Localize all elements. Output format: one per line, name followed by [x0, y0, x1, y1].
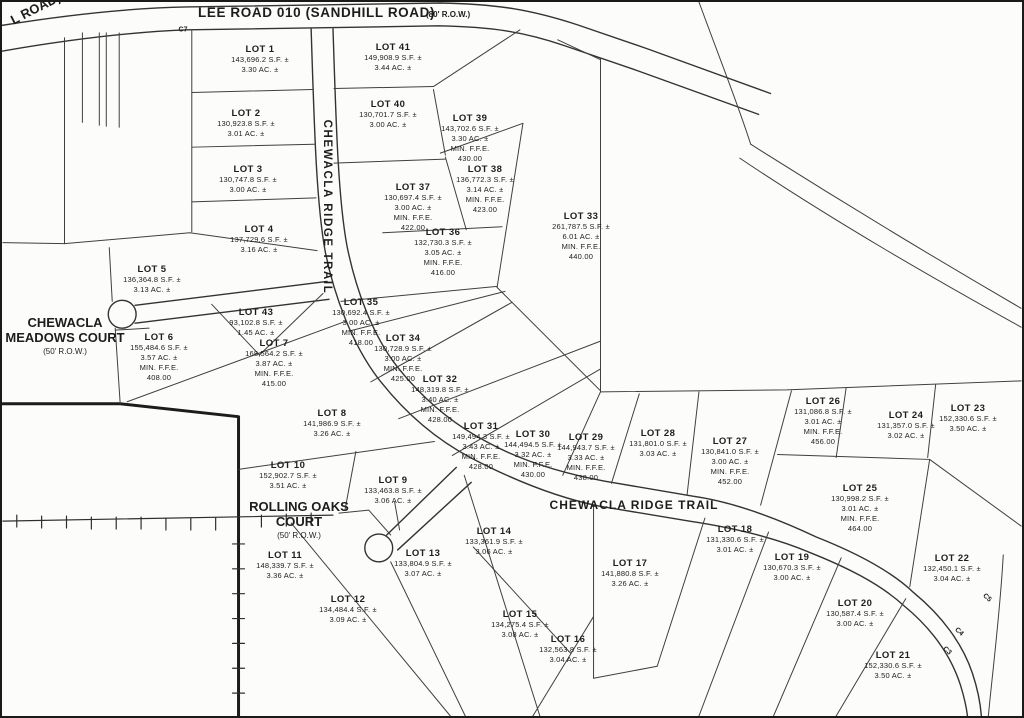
- lot-boundary-line: [3, 243, 65, 244]
- lot-number: LOT 25: [831, 483, 889, 494]
- lot-min-ffe-label: MIN. F.F.E.: [557, 463, 615, 473]
- lot-number: LOT 2: [217, 108, 275, 119]
- lot-area-sf: 133,463.8 S.F. ±: [364, 486, 422, 496]
- hatched-boundary: [3, 513, 333, 693]
- plat-map: LEE ROAD 010 (SANDHILL ROAD) (80' R.O.W.…: [0, 0, 1024, 718]
- lot-area-sf: 149,908.9 S.F. ±: [364, 53, 422, 63]
- lot-label: LOT 3 130,747.8 S.F. ± 3.00 AC. ±: [219, 164, 277, 195]
- lot-boundary-line: [433, 30, 520, 87]
- lot-label: LOT 23 152,330.6 S.F. ± 3.50 AC. ±: [939, 403, 997, 434]
- road-label-rolling-oaks-court: ROLLING OAKS COURT (50' R.O.W.): [249, 500, 349, 540]
- lot-label: LOT 43 93,102.8 S.F. ± 1.45 AC. ±: [229, 307, 282, 338]
- lot-boundary-line: [761, 391, 792, 505]
- lot-label: LOT 4 137,729.6 S.F. ± 3.16 AC. ±: [230, 224, 288, 255]
- lot-number: LOT 1: [231, 44, 289, 55]
- lot-area-ac: 3.00 AC. ±: [359, 120, 417, 130]
- lot-number: LOT 21: [864, 650, 922, 661]
- lot-min-ffe-label: MIN. F.F.E.: [411, 405, 469, 415]
- lot-label: LOT 17 141,880.8 S.F. ± 3.26 AC. ±: [601, 558, 659, 589]
- lot-area-sf: 130,670.3 S.F. ±: [763, 563, 821, 573]
- lot-area-ac: 1.45 AC. ±: [229, 328, 282, 338]
- lot-area-ac: 3.00 AC. ±: [384, 203, 442, 213]
- lot-area-ac: 3.00 AC. ±: [701, 457, 759, 467]
- lot-area-sf: 152,330.6 S.F. ±: [864, 661, 922, 671]
- court-name-line: CHEWACLA: [5, 316, 124, 331]
- lot-min-ffe-value: 456.00: [794, 437, 852, 447]
- lot-area-ac: 3.13 AC. ±: [123, 285, 181, 295]
- lot-label: LOT 37 130,697.4 S.F. ± 3.00 AC. ± MIN. …: [384, 182, 442, 233]
- lot-number: LOT 14: [465, 526, 523, 537]
- lot-area-sf: 155,484.6 S.F. ±: [130, 343, 188, 353]
- lot-min-ffe-label: MIN. F.F.E.: [441, 144, 499, 154]
- lot-area-ac: 3.07 AC. ±: [394, 569, 452, 579]
- court-name-line: ROLLING OAKS: [249, 500, 349, 515]
- lot-number: LOT 26: [794, 396, 852, 407]
- road-label-chewacla-meadows-court: CHEWACLA MEADOWS COURT (50' R.O.W.): [5, 316, 124, 356]
- lot-area-sf: 134,275.4 S.F. ±: [491, 620, 549, 630]
- lot-number: LOT 8: [303, 408, 361, 419]
- lot-boundary-line: [558, 40, 601, 60]
- lot-area-sf: 130,697.4 S.F. ±: [384, 193, 442, 203]
- lot-min-ffe-label: MIN. F.F.E.: [414, 258, 472, 268]
- lot-min-ffe-value: 440.00: [552, 252, 610, 262]
- lot-label: LOT 2 130,923.8 S.F. ± 3.01 AC. ±: [217, 108, 275, 139]
- lot-min-ffe-label: MIN. F.F.E.: [701, 467, 759, 477]
- lot-boundary-line: [109, 248, 112, 302]
- lot-min-ffe-value: 425.00: [374, 374, 432, 384]
- lot-min-ffe-value: 430.00: [441, 154, 499, 164]
- lot-min-ffe-value: 464.00: [831, 524, 889, 534]
- lot-boundary-line: [657, 518, 705, 666]
- court-name-line: COURT: [249, 515, 349, 530]
- lot-number: LOT 6: [130, 332, 188, 343]
- lot-number: LOT 3: [219, 164, 277, 175]
- lot-boundary-line: [601, 381, 1022, 392]
- lot-area-ac: 3.26 AC. ±: [303, 429, 361, 439]
- lot-min-ffe-value: 423.00: [456, 205, 514, 215]
- boundary-ticks: [17, 513, 311, 693]
- lot-number: LOT 30: [504, 429, 562, 440]
- lot-area-ac: 3.14 AC. ±: [456, 185, 514, 195]
- lot-label: LOT 40 130,701.7 S.F. ± 3.00 AC. ±: [359, 99, 417, 130]
- lot-number: LOT 20: [826, 598, 884, 609]
- lot-boundary-line: [391, 562, 466, 716]
- lot-min-ffe-label: MIN. F.F.E.: [384, 213, 442, 223]
- lot-boundary-line: [988, 555, 1003, 716]
- lot-area-sf: 168,564.2 S.F. ±: [245, 349, 303, 359]
- lot-area-ac: 3.06 AC. ±: [364, 496, 422, 506]
- lot-min-ffe-label: MIN. F.F.E.: [374, 364, 432, 374]
- lot-area-sf: 130,692.4 S.F. ±: [332, 308, 390, 318]
- lot-area-sf: 152,902.7 S.F. ±: [259, 471, 317, 481]
- lot-number: LOT 13: [394, 548, 452, 559]
- lot-area-sf: 130,747.8 S.F. ±: [219, 175, 277, 185]
- lot-area-ac: 3.06 AC. ±: [465, 547, 523, 557]
- lot-area-ac: 3.50 AC. ±: [864, 671, 922, 681]
- lot-boundary-line: [334, 87, 433, 89]
- lot-min-ffe-value: 416.00: [414, 268, 472, 278]
- lot-number: LOT 33: [552, 211, 610, 222]
- road-row-label: (80' R.O.W.): [426, 10, 470, 19]
- lot-label: LOT 27 130,841.0 S.F. ± 3.00 AC. ± MIN. …: [701, 436, 759, 487]
- lot-boundary-line: [740, 158, 1021, 327]
- lot-area-ac: 3.33 AC. ±: [557, 453, 615, 463]
- lot-area-sf: 149,494.3 S.F. ±: [452, 432, 510, 442]
- lot-label: LOT 31 149,494.3 S.F. ± 3.43 AC. ± MIN. …: [452, 421, 510, 472]
- lot-label: LOT 38 136,772.3 S.F. ± 3.14 AC. ± MIN. …: [456, 164, 514, 215]
- lot-area-sf: 130,701.7 S.F. ±: [359, 110, 417, 120]
- lot-label: LOT 24 131,357.0 S.F. ± 3.02 AC. ±: [877, 410, 935, 441]
- lot-area-ac: 3.87 AC. ±: [245, 359, 303, 369]
- lot-label: LOT 33 261,787.5 S.F. ± 6.01 AC. ± MIN. …: [552, 211, 610, 262]
- lot-area-ac: 3.01 AC. ±: [217, 129, 275, 139]
- lot-area-sf: 93,102.8 S.F. ±: [229, 318, 282, 328]
- lot-min-ffe-value: 430.00: [504, 470, 562, 480]
- lot-number: LOT 37: [384, 182, 442, 193]
- lot-min-ffe-label: MIN. F.F.E.: [332, 328, 390, 338]
- lot-number: LOT 35: [332, 297, 390, 308]
- boundary-line: [3, 404, 239, 716]
- lot-area-ac: 3.40 AC. ±: [411, 395, 469, 405]
- lot-min-ffe-label: MIN. F.F.E.: [456, 195, 514, 205]
- lot-area-sf: 130,587.4 S.F. ±: [826, 609, 884, 619]
- road-label-chewacla-ridge-trail-vertical: CHEWACLA RIDGE TRAIL: [321, 120, 333, 295]
- lot-label: LOT 10 152,902.7 S.F. ± 3.51 AC. ±: [259, 460, 317, 491]
- lot-min-ffe-label: MIN. F.F.E.: [552, 242, 610, 252]
- lot-label: LOT 18 131,330.6 S.F. ± 3.01 AC. ±: [706, 524, 764, 555]
- lot-label: LOT 22 132,450.1 S.F. ± 3.04 AC. ±: [923, 553, 981, 584]
- lot-area-sf: 143,702.6 S.F. ±: [441, 124, 499, 134]
- court-row-label: (50' R.O.W.): [5, 347, 124, 356]
- lot-area-sf: 148,319.8 S.F. ±: [411, 385, 469, 395]
- lot-boundary-line: [594, 666, 658, 678]
- lot-area-ac: 3.30 AC. ±: [231, 65, 289, 75]
- lot-number: LOT 7: [245, 338, 303, 349]
- lot-label: LOT 29 144,943.7 S.F. ± 3.33 AC. ± MIN. …: [557, 432, 615, 483]
- lot-label: LOT 21 152,330.6 S.F. ± 3.50 AC. ±: [864, 650, 922, 681]
- lot-number: LOT 43: [229, 307, 282, 318]
- lot-area-sf: 130,841.0 S.F. ±: [701, 447, 759, 457]
- lot-area-sf: 131,330.6 S.F. ±: [706, 535, 764, 545]
- lot-area-ac: 3.04 AC. ±: [923, 574, 981, 584]
- lot-area-ac: 3.57 AC. ±: [130, 353, 188, 363]
- lot-area-ac: 3.43 AC. ±: [452, 442, 510, 452]
- lot-area-ac: 3.09 AC. ±: [319, 615, 377, 625]
- lot-label: LOT 11 148,339.7 S.F. ± 3.36 AC. ±: [256, 550, 314, 581]
- lot-label: LOT 36 132,730.3 S.F. ± 3.05 AC. ± MIN. …: [414, 227, 472, 278]
- lot-number: LOT 10: [259, 460, 317, 471]
- lot-area-ac: 3.50 AC. ±: [939, 424, 997, 434]
- lot-number: LOT 23: [939, 403, 997, 414]
- lot-min-ffe-label: MIN. F.F.E.: [130, 363, 188, 373]
- lot-label: LOT 1 143,696.2 S.F. ± 3.30 AC. ±: [231, 44, 289, 75]
- lot-label: LOT 25 130,998.2 S.F. ± 3.01 AC. ± MIN. …: [831, 483, 889, 534]
- lot-area-ac: 3.51 AC. ±: [259, 481, 317, 491]
- lot-area-sf: 261,787.5 S.F. ±: [552, 222, 610, 232]
- lot-area-ac: 3.00 AC. ±: [826, 619, 884, 629]
- lot-min-ffe-value: 422.00: [384, 223, 442, 233]
- lot-area-ac: 3.32 AC. ±: [504, 450, 562, 460]
- lot-area-ac: 3.01 AC. ±: [794, 417, 852, 427]
- lot-label: LOT 7 168,564.2 S.F. ± 3.87 AC. ± MIN. F…: [245, 338, 303, 389]
- lot-number: LOT 11: [256, 550, 314, 561]
- lot-area-sf: 152,330.6 S.F. ±: [939, 414, 997, 424]
- lot-area-ac: 3.01 AC. ±: [831, 504, 889, 514]
- lot-area-sf: 131,086.8 S.F. ±: [794, 407, 852, 417]
- lot-label: LOT 20 130,587.4 S.F. ± 3.00 AC. ±: [826, 598, 884, 629]
- curve-label: C7: [179, 27, 188, 34]
- lot-number: LOT 28: [629, 428, 687, 439]
- lot-area-sf: 137,729.6 S.F. ±: [230, 235, 288, 245]
- lot-area-sf: 148,339.7 S.F. ±: [256, 561, 314, 571]
- lot-boundary-line: [778, 454, 930, 459]
- lot-number: LOT 38: [456, 164, 514, 175]
- road-label-chewacla-ridge-trail-horizontal: CHEWACLA RIDGE TRAIL: [550, 498, 719, 512]
- lot-label: LOT 30 144,494.5 S.F. ± 3.32 AC. ± MIN. …: [504, 429, 562, 480]
- lot-area-ac: 3.00 AC. ±: [374, 354, 432, 364]
- lot-area-sf: 136,772.3 S.F. ±: [456, 175, 514, 185]
- court-row-label: (50' R.O.W.): [249, 531, 349, 540]
- lot-area-ac: 3.30 AC. ±: [441, 134, 499, 144]
- lot-min-ffe-value: 415.00: [245, 379, 303, 389]
- lot-label: LOT 6 155,484.6 S.F. ± 3.57 AC. ± MIN. F…: [130, 332, 188, 383]
- court-name-line: MEADOWS COURT: [5, 331, 124, 346]
- lot-boundary-line: [687, 392, 699, 495]
- lot-number: LOT 17: [601, 558, 659, 569]
- lot-min-ffe-value: 428.00: [411, 415, 469, 425]
- lot-number: LOT 24: [877, 410, 935, 421]
- lot-label: LOT 39 143,702.6 S.F. ± 3.30 AC. ± MIN. …: [441, 113, 499, 164]
- lot-label: LOT 35 130,692.4 S.F. ± 3.00 AC. ± MIN. …: [332, 297, 390, 348]
- lot-label: LOT 14 133,361.9 S.F. ± 3.06 AC. ±: [465, 526, 523, 557]
- lot-min-ffe-value: 452.00: [701, 477, 759, 487]
- lot-label: LOT 8 141,986.9 S.F. ± 3.26 AC. ±: [303, 408, 361, 439]
- lot-boundary-line: [464, 475, 540, 716]
- lot-area-ac: 3.26 AC. ±: [601, 579, 659, 589]
- lot-area-sf: 143,696.2 S.F. ±: [231, 55, 289, 65]
- lot-min-ffe-label: MIN. F.F.E.: [831, 514, 889, 524]
- lot-number: LOT 4: [230, 224, 288, 235]
- subdivision-boundary: [3, 404, 239, 716]
- road-label-lee-road: LEE ROAD 010 (SANDHILL ROAD): [198, 5, 435, 20]
- lot-area-ac: 3.01 AC. ±: [706, 545, 764, 555]
- lot-area-ac: 3.02 AC. ±: [877, 431, 935, 441]
- lot-boundary-line: [751, 144, 1021, 308]
- lot-label: LOT 12 134,484.4 S.F. ± 3.09 AC. ±: [319, 594, 377, 625]
- lot-number: LOT 18: [706, 524, 764, 535]
- lot-number: LOT 15: [491, 609, 549, 620]
- lot-min-ffe-value: 438.00: [557, 473, 615, 483]
- lot-boundary-line: [334, 159, 445, 163]
- lot-label: LOT 5 136,364.8 S.F. ± 3.13 AC. ±: [123, 264, 181, 295]
- lot-area-sf: 141,880.8 S.F. ±: [601, 569, 659, 579]
- lot-number: LOT 40: [359, 99, 417, 110]
- lot-min-ffe-label: MIN. F.F.E.: [245, 369, 303, 379]
- lot-area-ac: 3.04 AC. ±: [539, 655, 597, 665]
- lot-area-sf: 144,943.7 S.F. ±: [557, 443, 615, 453]
- lot-min-ffe-label: MIN. F.F.E.: [452, 452, 510, 462]
- lot-area-ac: 6.01 AC. ±: [552, 232, 610, 242]
- lot-number: LOT 5: [123, 264, 181, 275]
- lot-area-sf: 132,730.3 S.F. ±: [414, 238, 472, 248]
- cul-de-sac: [365, 534, 393, 562]
- lot-label: LOT 13 133,804.9 S.F. ± 3.07 AC. ±: [394, 548, 452, 579]
- lot-label: LOT 26 131,086.8 S.F. ± 3.01 AC. ± MIN. …: [794, 396, 852, 447]
- lot-area-ac: 3.00 AC. ±: [219, 185, 277, 195]
- lot-area-sf: 130,998.2 S.F. ±: [831, 494, 889, 504]
- lot-area-sf: 131,801.0 S.F. ±: [629, 439, 687, 449]
- lot-area-ac: 3.03 AC. ±: [629, 449, 687, 459]
- lot-area-sf: 132,450.1 S.F. ±: [923, 564, 981, 574]
- lot-boundary-line: [192, 90, 312, 93]
- lot-area-ac: 3.36 AC. ±: [256, 571, 314, 581]
- lot-boundary-line: [192, 144, 314, 147]
- lot-number: LOT 12: [319, 594, 377, 605]
- lot-area-sf: 133,804.9 S.F. ±: [394, 559, 452, 569]
- lot-area-sf: 141,986.9 S.F. ±: [303, 419, 361, 429]
- lot-boundary-line: [930, 459, 1021, 526]
- lot-boundary-line: [192, 198, 316, 202]
- lot-area-sf: 133,361.9 S.F. ±: [465, 537, 523, 547]
- lot-area-ac: 3.00 AC. ±: [332, 318, 390, 328]
- lot-label: LOT 41 149,908.9 S.F. ± 3.44 AC. ±: [364, 42, 422, 73]
- lot-number: LOT 22: [923, 553, 981, 564]
- lot-boundary-line: [699, 532, 769, 716]
- lot-number: LOT 41: [364, 42, 422, 53]
- lot-area-ac: 3.44 AC. ±: [364, 63, 422, 73]
- lot-boundary-line: [699, 2, 751, 144]
- lot-area-sf: 144,494.5 S.F. ±: [504, 440, 562, 450]
- lot-label: LOT 9 133,463.8 S.F. ± 3.06 AC. ±: [364, 475, 422, 506]
- lot-number: LOT 16: [539, 634, 597, 645]
- lot-number: LOT 39: [441, 113, 499, 124]
- lot-label: LOT 28 131,801.0 S.F. ± 3.03 AC. ±: [629, 428, 687, 459]
- lot-number: LOT 29: [557, 432, 615, 443]
- lot-number: LOT 19: [763, 552, 821, 563]
- lot-min-ffe-value: 408.00: [130, 373, 188, 383]
- lot-min-ffe-label: MIN. F.F.E.: [794, 427, 852, 437]
- lot-min-ffe-value: 418.00: [332, 338, 390, 348]
- lot-area-sf: 136,364.8 S.F. ±: [123, 275, 181, 285]
- lot-area-ac: 3.05 AC. ±: [414, 248, 472, 258]
- lot-area-ac: 3.16 AC. ±: [230, 245, 288, 255]
- lot-min-ffe-label: MIN. F.F.E.: [504, 460, 562, 470]
- lot-min-ffe-value: 428.00: [452, 462, 510, 472]
- lot-number: LOT 27: [701, 436, 759, 447]
- lot-area-sf: 132,563.8 S.F. ±: [539, 645, 597, 655]
- lot-area-sf: 134,484.4 S.F. ±: [319, 605, 377, 615]
- lot-area-sf: 130,923.8 S.F. ±: [217, 119, 275, 129]
- lot-label: LOT 19 130,670.3 S.F. ± 3.00 AC. ±: [763, 552, 821, 583]
- lot-label: LOT 16 132,563.8 S.F. ± 3.04 AC. ±: [539, 634, 597, 665]
- lot-number: LOT 9: [364, 475, 422, 486]
- lot-area-ac: 3.00 AC. ±: [763, 573, 821, 583]
- lot-area-sf: 131,357.0 S.F. ±: [877, 421, 935, 431]
